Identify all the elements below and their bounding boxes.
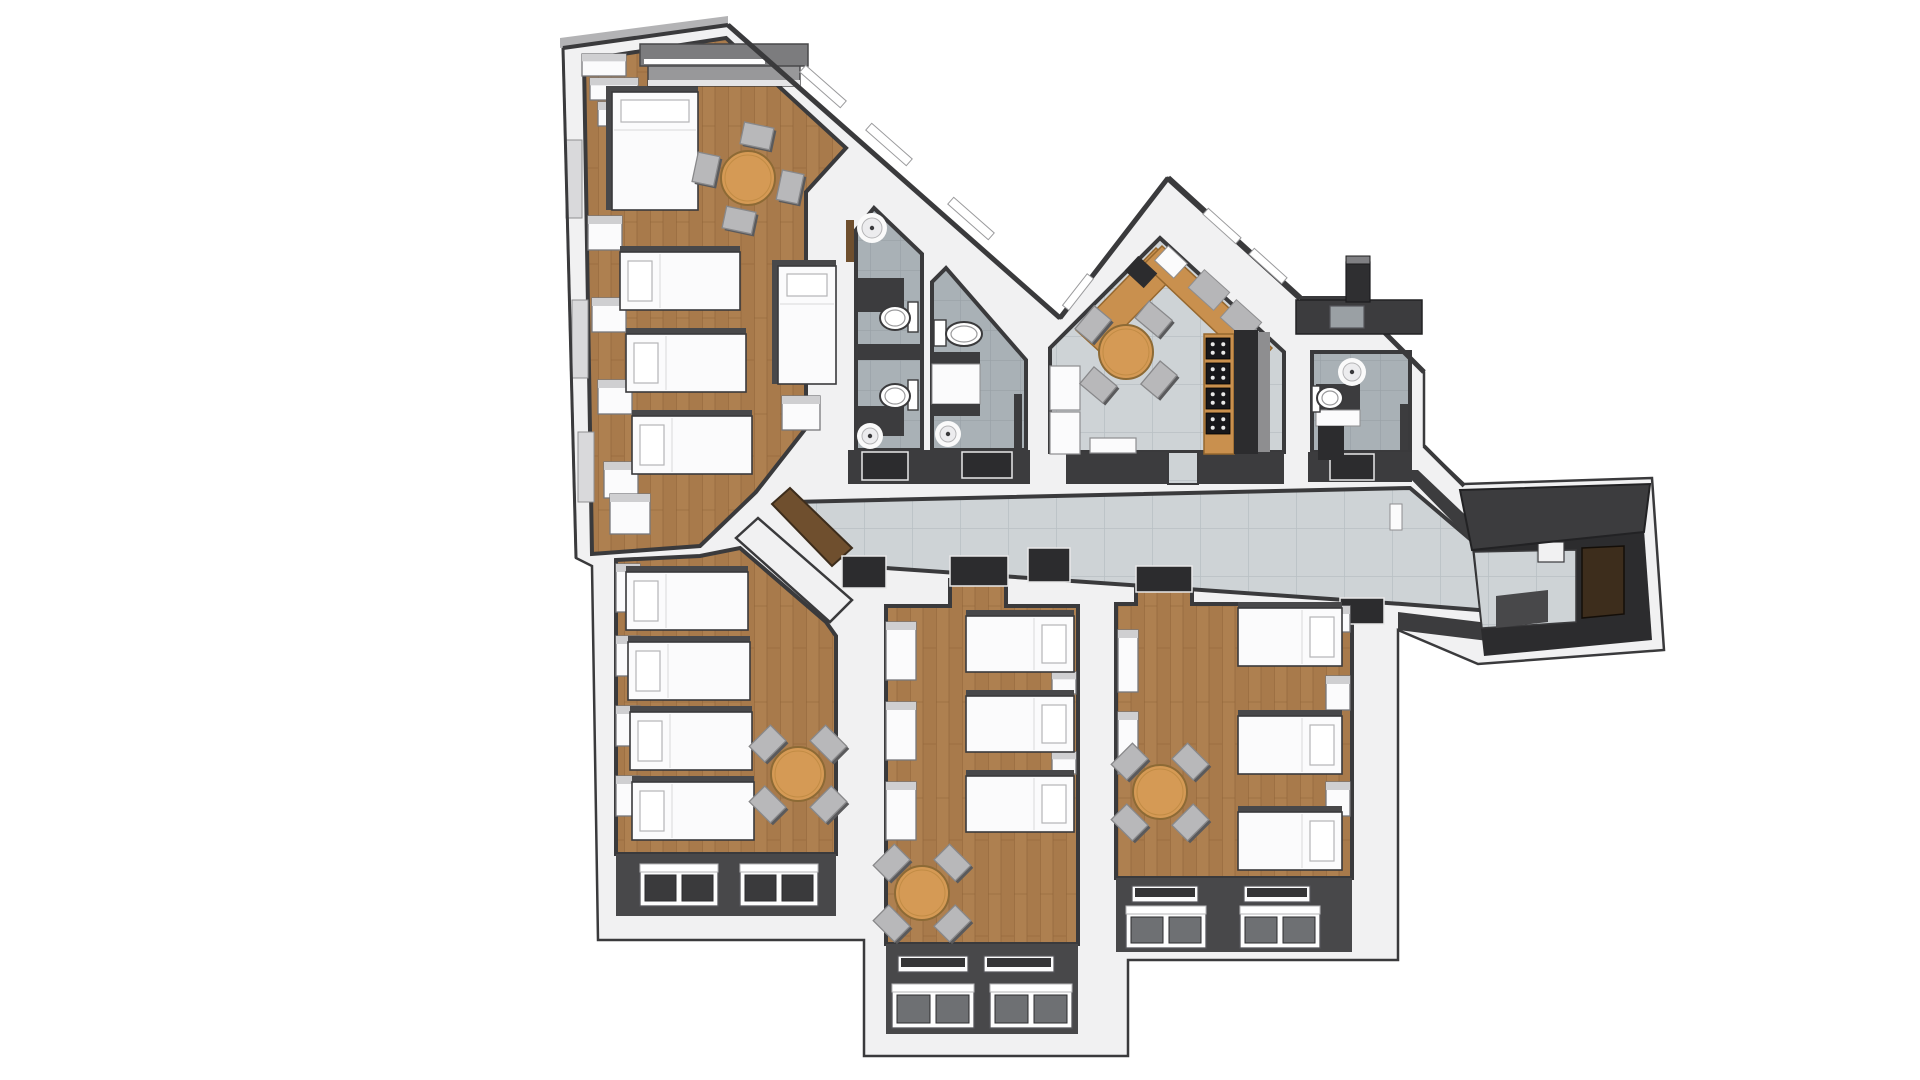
burner-dot (1221, 426, 1225, 430)
window-pane (745, 875, 776, 901)
room-br-door-slot (1136, 566, 1192, 592)
burner-dot (1211, 342, 1215, 346)
nightstand-top (1326, 782, 1350, 790)
window-pane (1245, 917, 1277, 943)
pillow (640, 425, 664, 465)
entry-step (1496, 590, 1548, 628)
burner-dot (1221, 392, 1225, 396)
window-sill (572, 300, 588, 378)
kitchen-door-notch (1168, 452, 1198, 484)
nightstand-top (782, 396, 820, 404)
window-pane (645, 875, 676, 901)
burner-dot (1221, 401, 1225, 405)
sink-drain (870, 226, 874, 230)
wardrobe-top (886, 702, 916, 710)
pillow (634, 581, 658, 621)
pillow (628, 261, 652, 301)
nightstand-top (1326, 676, 1350, 684)
wardrobe-top (886, 782, 916, 790)
window-sill (990, 984, 1072, 992)
burner-dot (1211, 417, 1215, 421)
window-sill (1240, 906, 1320, 914)
floor-plan-canvas (0, 0, 1920, 1080)
pillow (1310, 821, 1334, 861)
toilet-tank (934, 320, 946, 346)
window-pane (1034, 995, 1067, 1023)
kitchen-bench (1090, 438, 1136, 453)
luggage-rack-top (987, 958, 1051, 967)
burner-dot (1211, 367, 1215, 371)
window-sill (740, 864, 818, 872)
pillow (636, 651, 660, 691)
chimney-top (1346, 256, 1370, 264)
wardrobe (886, 622, 916, 680)
chimney (1346, 262, 1370, 302)
burner-dot (1221, 376, 1225, 380)
nightstand-top (1052, 752, 1076, 759)
cooktop (1206, 388, 1230, 409)
bath-door-jamb (846, 220, 854, 262)
burner-dot (1211, 426, 1215, 430)
room-bm-door-slot (950, 556, 1008, 586)
window-sill (578, 432, 594, 502)
window-pane (782, 875, 813, 901)
window-sill (1126, 906, 1206, 914)
window-pane (897, 995, 930, 1023)
window-pane (936, 995, 969, 1023)
cooktop (1206, 413, 1230, 434)
pillow (638, 721, 662, 761)
burner-dot (1221, 351, 1225, 355)
burner-dot (1221, 342, 1225, 346)
sink-drain (946, 432, 950, 436)
pillow (621, 100, 689, 122)
pillow (1042, 705, 1066, 743)
pillow (787, 274, 827, 296)
bathroom-2-door-slot (962, 452, 1012, 478)
wardrobe (886, 702, 916, 760)
window-pane (1169, 917, 1201, 943)
wardrobe (1118, 630, 1138, 692)
dining-table-kitchen (1099, 325, 1153, 379)
pillow (1042, 625, 1066, 663)
kitchen-cabinet (1050, 366, 1080, 410)
kitchen-wall-strip (1258, 332, 1270, 452)
burner-dot (1211, 376, 1215, 380)
wardrobe-top (886, 622, 916, 630)
toilet (1317, 387, 1343, 409)
burner-dot (1211, 401, 1215, 405)
skylight (1330, 306, 1364, 328)
luggage-rack-top (901, 958, 965, 967)
window-band-rail (644, 59, 765, 64)
cooktop (1206, 338, 1230, 359)
radiator (1400, 404, 1408, 450)
wardrobe (886, 782, 916, 840)
entry-wall-window (1390, 504, 1402, 530)
pillow (1310, 725, 1334, 765)
burner-dot (1211, 351, 1215, 355)
radiator (1014, 394, 1022, 452)
window-pane (1131, 917, 1163, 943)
window-sill (892, 984, 974, 992)
window-pane (1283, 917, 1315, 943)
window-sill (640, 864, 718, 872)
pillow (640, 791, 664, 831)
wardrobe-step-top (582, 54, 626, 61)
burner-dot (1221, 367, 1225, 371)
dining-table-bottom-middle (895, 866, 949, 920)
wardrobe-top (1118, 712, 1138, 720)
window-pane (682, 875, 713, 901)
partition-dark (856, 344, 922, 360)
dining-table-bottom-left (771, 747, 825, 801)
shelf-unit-body (932, 364, 980, 404)
luggage-rack-top (1247, 888, 1307, 897)
wardrobe-top (588, 216, 622, 224)
cooktop (1206, 363, 1230, 384)
burner-dot (1221, 417, 1225, 421)
kitchen-cabinet (1050, 412, 1080, 454)
bathroom-1-door-slot (862, 452, 908, 480)
wardrobe-step-top (590, 78, 638, 85)
nightstand-top (1052, 672, 1076, 679)
entry-back-notch (1538, 542, 1564, 562)
pillow (1310, 617, 1334, 657)
low-cabinet-gray-front (648, 80, 800, 86)
dark-column (1318, 426, 1344, 460)
pillow (634, 343, 658, 383)
shelf-unit-bottom (932, 404, 980, 416)
cabinet-top (610, 494, 650, 502)
wardrobe-top (1118, 630, 1138, 638)
vanity-front (1316, 410, 1360, 426)
room-bl-door-slot (842, 556, 886, 588)
sink-drain (868, 434, 872, 438)
shelf-unit-top (932, 352, 980, 364)
pillow (1042, 785, 1066, 823)
window-pane (995, 995, 1028, 1023)
dining-table-top-left (721, 151, 775, 205)
room-bm-step-block (1028, 548, 1070, 582)
dining-table-bottom-right (1133, 765, 1187, 819)
kitchen-tall-unit (1234, 330, 1258, 454)
luggage-rack-top (1135, 888, 1195, 897)
floor-plan (0, 0, 1920, 1080)
entry-door (1582, 546, 1624, 618)
burner-dot (1211, 392, 1215, 396)
sink-drain (1350, 370, 1354, 374)
